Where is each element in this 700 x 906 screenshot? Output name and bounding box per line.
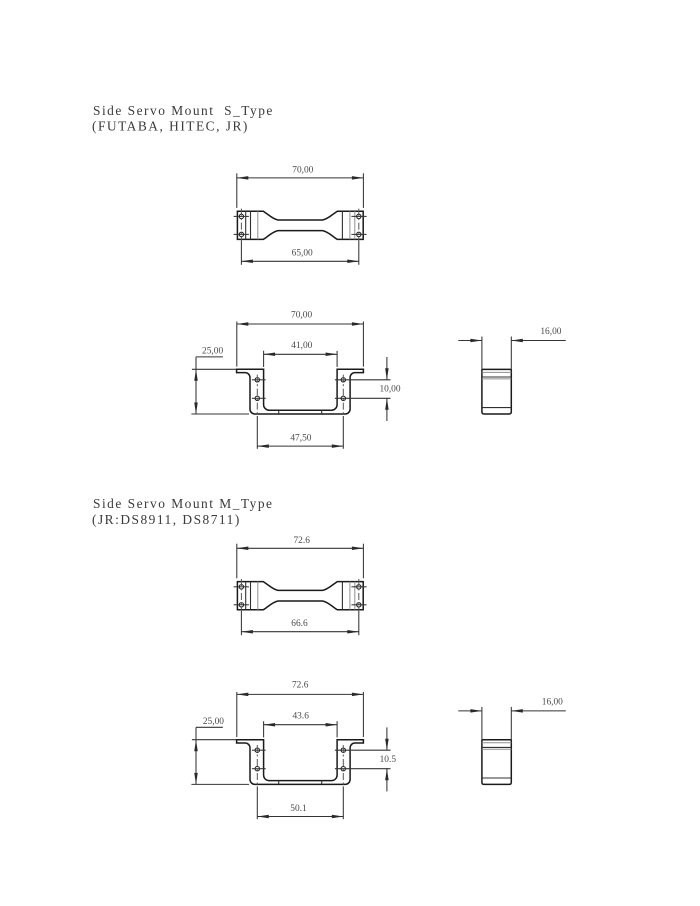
svg-text:70,00: 70,00 xyxy=(291,310,312,320)
svg-text:72.6: 72.6 xyxy=(292,681,309,691)
svg-text:47,50: 47,50 xyxy=(290,433,311,443)
svg-text:43.6: 43.6 xyxy=(292,711,309,721)
svg-text:Side Servo Mount S_Type: Side Servo Mount S_Type xyxy=(93,103,274,118)
svg-text:(JR:DS8911, DS8711): (JR:DS8911, DS8711) xyxy=(92,512,241,527)
svg-text:25,00: 25,00 xyxy=(202,346,223,356)
svg-text:25,00: 25,00 xyxy=(203,717,224,727)
svg-text:Side Servo Mount M_Type: Side Servo Mount M_Type xyxy=(93,496,273,511)
svg-text:72.6: 72.6 xyxy=(293,536,310,546)
svg-text:65,00: 65,00 xyxy=(292,249,313,259)
svg-text:70,00: 70,00 xyxy=(292,166,313,176)
svg-text:41,00: 41,00 xyxy=(291,341,312,351)
svg-text:16,00: 16,00 xyxy=(542,698,563,708)
svg-text:(FUTABA, HITEC, JR): (FUTABA, HITEC, JR) xyxy=(92,119,249,134)
svg-text:16,00: 16,00 xyxy=(540,327,561,337)
svg-text:66.6: 66.6 xyxy=(291,619,308,629)
svg-text:10.5: 10.5 xyxy=(380,755,397,765)
svg-text:50.1: 50.1 xyxy=(290,804,307,814)
svg-text:10,00: 10,00 xyxy=(379,384,400,394)
